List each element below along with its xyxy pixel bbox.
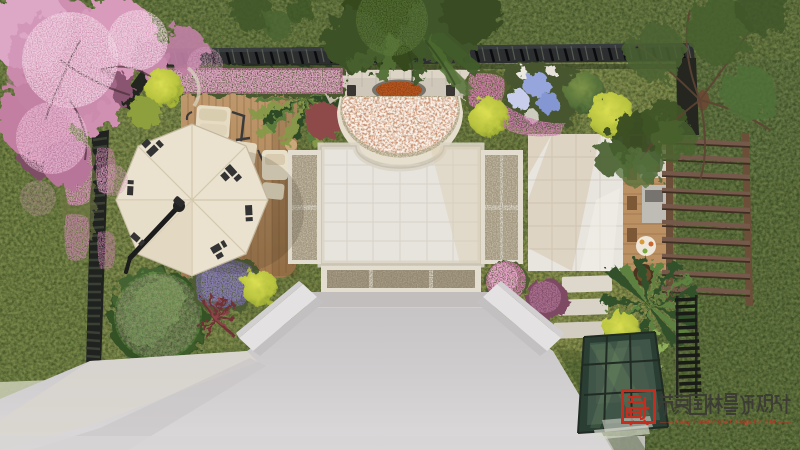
svg-text:—— Fanyi Landscape Design Co.,: —— Fanyi Landscape Design Co.,Ltd —— bbox=[660, 419, 791, 426]
